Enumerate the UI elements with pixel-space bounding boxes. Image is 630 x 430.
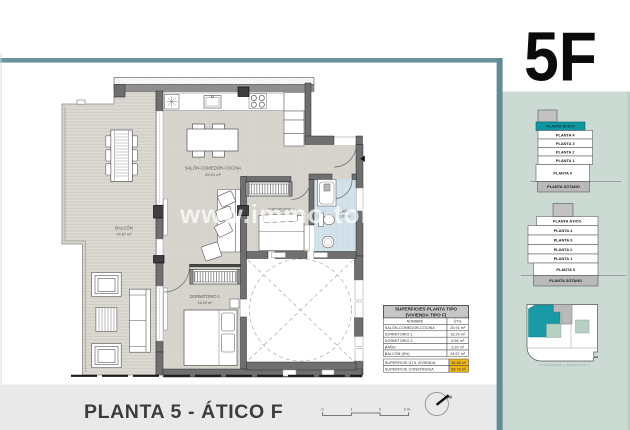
svg-text:SUPERFICIES PLANTA TIPO: SUPERFICIES PLANTA TIPO (395, 307, 457, 312)
svg-text:58.76 m²: 58.76 m² (451, 367, 467, 371)
svg-text:PLANTA SÓTANO: PLANTA SÓTANO (549, 278, 582, 283)
svg-text:BALCÓN: BALCÓN (115, 226, 133, 231)
svg-text:DORMITORIO 1: DORMITORIO 1 (385, 333, 413, 337)
svg-text:DORMITORIO 2: DORMITORIO 2 (385, 339, 413, 343)
svg-text:C/ VILLA MADRID 2 - PLANTA ÁTI: C/ VILLA MADRID 2 - PLANTA ÁTICO - F (540, 363, 590, 367)
svg-text:PLANTA 2: PLANTA 2 (554, 247, 573, 252)
svg-text:PLANTA 3: PLANTA 3 (556, 141, 575, 146)
svg-text:PLANTA 5 - ÁTICO F: PLANTA 5 - ÁTICO F (84, 400, 283, 423)
svg-text:PLANTA 0: PLANTA 0 (556, 267, 575, 272)
svg-text:24.67 m²: 24.67 m² (116, 232, 132, 237)
svg-text:PLANTA 4: PLANTA 4 (556, 132, 575, 137)
svg-text:SUPERFICIE ÚTIL VIVIENDA: SUPERFICIE ÚTIL VIVIENDA (385, 360, 436, 365)
svg-text:PLANTA 3: PLANTA 3 (554, 237, 573, 242)
svg-text:16.29 m²: 16.29 m² (198, 301, 214, 305)
svg-text:3 m: 3 m (404, 407, 411, 412)
svg-text:48.88 m²: 48.88 m² (451, 361, 467, 365)
svg-text:PLANTA 1: PLANTA 1 (554, 256, 573, 261)
svg-text:BAÑO: BAÑO (385, 344, 396, 349)
svg-text:6.55 m²: 6.55 m² (451, 339, 465, 343)
svg-text:25.91 m²: 25.91 m² (450, 326, 466, 330)
svg-text:SALÓN-COMEDOR-COCINA: SALÓN-COMEDOR-COCINA (385, 325, 435, 330)
svg-text:3.20 m²: 3.20 m² (451, 345, 465, 349)
svg-text:24.67 m²: 24.67 m² (450, 352, 466, 356)
svg-text:PLANTA ÁTICO: PLANTA ÁTICO (546, 124, 575, 129)
svg-text:ÚTIL: ÚTIL (454, 319, 462, 324)
svg-text:SUPERFICIE CONSTRUIDA: SUPERFICIE CONSTRUIDA (385, 367, 434, 371)
svg-text:PLANTA ÁTICO: PLANTA ÁTICO (553, 219, 582, 224)
svg-text:PLANTA 1: PLANTA 1 (556, 158, 575, 163)
svg-text:PLANTA 2: PLANTA 2 (556, 149, 575, 154)
svg-text:PLANTA 4: PLANTA 4 (554, 228, 573, 233)
svg-text:NOMBRE: NOMBRE (407, 320, 424, 324)
svg-text:N: N (448, 394, 452, 400)
svg-text:25.91 m²: 25.91 m² (205, 172, 221, 177)
svg-text:16.29 m²: 16.29 m² (450, 333, 466, 337)
svg-text:SALÓN-COMEDOR-COCINA: SALÓN-COMEDOR-COCINA (185, 166, 242, 171)
svg-text:www.immo-torrevieja.c: www.immo-torrevieja.c (179, 199, 485, 229)
svg-text:DORMITORIO 1: DORMITORIO 1 (190, 294, 221, 299)
svg-text:PLANTA 0: PLANTA 0 (553, 171, 572, 176)
svg-text:PLANTA SÓTANO: PLANTA SÓTANO (547, 184, 580, 189)
svg-text:BALCÓN (5%): BALCÓN (5%) (385, 351, 410, 356)
svg-text:5F: 5F (524, 18, 597, 96)
svg-text:(VIVIENDA TIPO F): (VIVIENDA TIPO F) (406, 313, 447, 318)
